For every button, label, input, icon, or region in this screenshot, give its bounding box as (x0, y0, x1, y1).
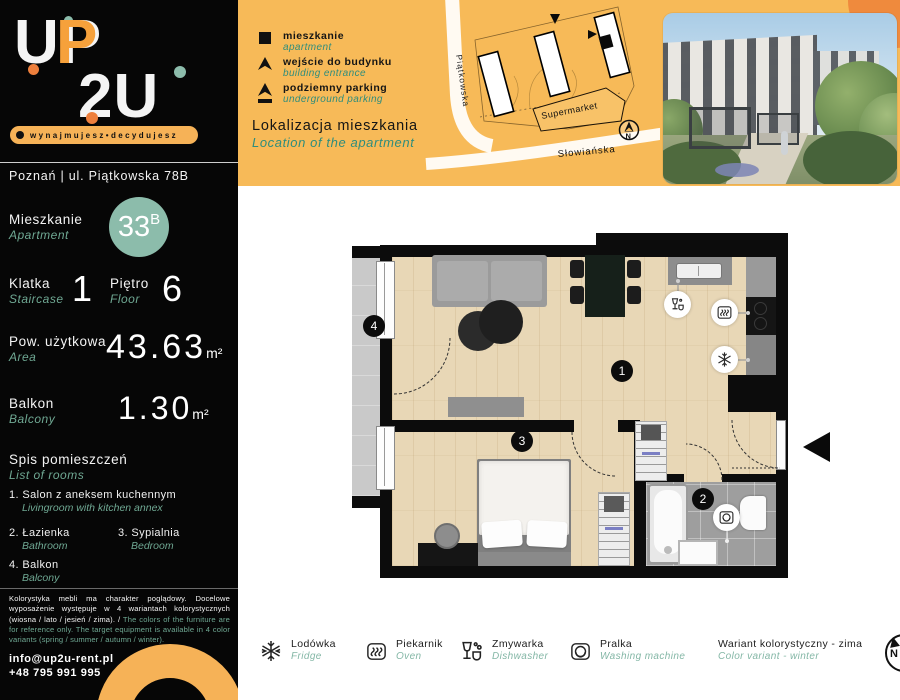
equipment-3-pl: Zmywarka (492, 638, 544, 651)
photo-pergola-2 (757, 113, 799, 145)
dishwasher-icon (459, 639, 484, 669)
washing-machine-plan-icon (713, 504, 740, 531)
area-label-pl: Pow. użytkowa (9, 334, 106, 350)
apartment-suffix: B (150, 211, 160, 228)
equipment-4-en: Washing machine (600, 651, 685, 663)
fridge-plan-icon (711, 346, 738, 373)
location-map: Supermarket N Piątkowska Słowiańska (420, 0, 660, 186)
equipment-2-en: Oven (396, 651, 422, 663)
map-building-1 (478, 51, 513, 116)
tagline-dot-icon (16, 131, 24, 139)
map-compass-n: N (626, 132, 631, 141)
logo-dot-orange-left (28, 64, 39, 75)
area-value: 43.63 (106, 328, 206, 366)
logo-tagline: wynajmujesz•decydujesz (30, 131, 178, 140)
apartment-label-en: Apartment (9, 228, 69, 242)
compass-needle (888, 636, 900, 648)
room-badge-3: 3 (511, 430, 533, 452)
decorative-ring (96, 644, 238, 700)
flyer-page: UP 2U P wynajmujesz•decydujesz Poznań | … (0, 0, 900, 700)
map-building-2 (534, 31, 569, 96)
room-badge-4: 4 (363, 315, 385, 337)
room-badge-4-num: 4 (371, 319, 378, 333)
oven-icon (365, 640, 388, 668)
legend-2-pl: wejście do budynku (283, 56, 392, 68)
room-item-3-en: Bedroom (131, 540, 174, 552)
leader-dot-oven (746, 311, 750, 315)
oven-plan-icon (711, 299, 738, 326)
rooms-title-en: List of rooms (9, 468, 84, 482)
room-badge-2-num: 2 (700, 492, 707, 506)
balcony-door-arc (394, 338, 450, 394)
room-badge-1: 1 (611, 360, 633, 382)
legend-3-pl: podziemny parking (283, 82, 387, 94)
building-photo (663, 13, 897, 184)
floor-label-en: Floor (110, 292, 140, 306)
equipment-3-en: Dishwasher (492, 651, 548, 663)
location-title-en: Location of the apartment (252, 135, 414, 150)
staircase-value: 1 (72, 268, 92, 310)
apartment-square-icon (259, 32, 271, 44)
variant-en: Color variant - winter (718, 651, 819, 663)
leader-dot-fridge (746, 358, 750, 362)
entrance-arrow (803, 432, 830, 462)
room-item-2-en: Bathroom (22, 540, 68, 552)
apartment-number: 33 (118, 211, 150, 244)
floor-label-pl: Piętro (110, 276, 149, 292)
apartment-label-pl: Mieszkanie (9, 212, 83, 228)
equipment-2-pl: Piekarnik (396, 638, 443, 651)
rooms-title-pl: Spis pomieszczeń (9, 452, 127, 468)
legend-1-en: apartment (283, 42, 332, 54)
logo-tagline-pill: wynajmujesz•decydujesz (10, 126, 198, 144)
area-label-en: Area (9, 350, 36, 364)
sidebar: UP 2U P wynajmujesz•decydujesz Poznań | … (0, 0, 238, 700)
room-item-1-pl: 1. Salon z aneksem kuchennym (9, 489, 176, 502)
room-item-4-en: Balcony (22, 572, 59, 584)
plan-overlay (350, 225, 840, 585)
photo-lavender (715, 163, 759, 177)
room-badge-2: 2 (692, 488, 714, 510)
logo-dot-teal-right (174, 66, 186, 78)
contact-phone: +48 795 991 995 (9, 666, 101, 680)
bathroom-door-arc (686, 444, 722, 480)
map-parking-arrow (588, 30, 597, 39)
logo-dot-orange-bottom (86, 112, 98, 124)
photo-pergola-1 (689, 107, 751, 149)
legend-3-en: underground parking (283, 94, 383, 106)
floor-value: 6 (162, 268, 182, 310)
area-value-wrap: 43.63m² (106, 328, 222, 367)
equipment-1-en: Fridge (291, 651, 322, 663)
dishwasher-plan-icon (664, 291, 691, 318)
balcony-unit: m² (192, 406, 208, 422)
address: Poznań | ul. Piątkowska 78B (9, 169, 189, 183)
underground-parking-bar-icon (258, 99, 272, 103)
balcony-value-wrap: 1.30m² (118, 390, 209, 427)
balcony-label-en: Balcony (9, 412, 55, 426)
balcony-value: 1.30 (118, 390, 192, 426)
photo-person (781, 131, 788, 155)
room-badge-3-num: 3 (519, 434, 526, 448)
photo-bush-2 (803, 131, 897, 184)
compass-n-label: N (890, 648, 898, 660)
variant-pl: Wariant kolorystyczny - zima (718, 638, 862, 651)
sidebar-divider (0, 162, 238, 163)
leader-dot-dishwasher (676, 279, 680, 283)
sidebar-divider-2 (0, 588, 238, 589)
apartment-number-badge: 33 B (109, 197, 169, 257)
logo-letter-p: P (56, 12, 98, 74)
entry-door-arc (732, 420, 780, 468)
balcony-label-pl: Balkon (9, 396, 54, 412)
legend-1-pl: mieszkanie (283, 30, 344, 42)
floor-plan: 1 2 3 4 (350, 225, 840, 585)
equipment-1-pl: Lodówka (291, 638, 336, 651)
location-title-pl: Lokalizacja mieszkania (252, 118, 418, 134)
room-badge-1-num: 1 (619, 364, 626, 378)
area-unit: m² (206, 345, 222, 361)
staircase-label-pl: Klatka (9, 276, 50, 292)
room-item-3-pl: 3. Sypialnia (118, 527, 180, 540)
equipment-4-pl: Pralka (600, 638, 632, 651)
room-item-1-en: Livingroom with kitchen annex (22, 502, 163, 514)
room-item-4-pl: 4. Balkon (9, 559, 58, 572)
leader-dot-washer (725, 539, 729, 543)
legend-2-en: building entrance (283, 68, 366, 80)
fridge-icon (259, 639, 283, 668)
room-item-2-pl: 2. Łazienka (9, 527, 70, 540)
map-building-3 (593, 12, 629, 77)
disclaimer: Kolorystyka mebli ma charakter poglądowy… (9, 594, 230, 646)
contact-email: info@up2u-rent.pl (9, 652, 114, 666)
washing-machine-icon (569, 640, 592, 668)
staircase-label-en: Staircase (9, 292, 64, 306)
bedroom-door-arc (572, 432, 616, 476)
